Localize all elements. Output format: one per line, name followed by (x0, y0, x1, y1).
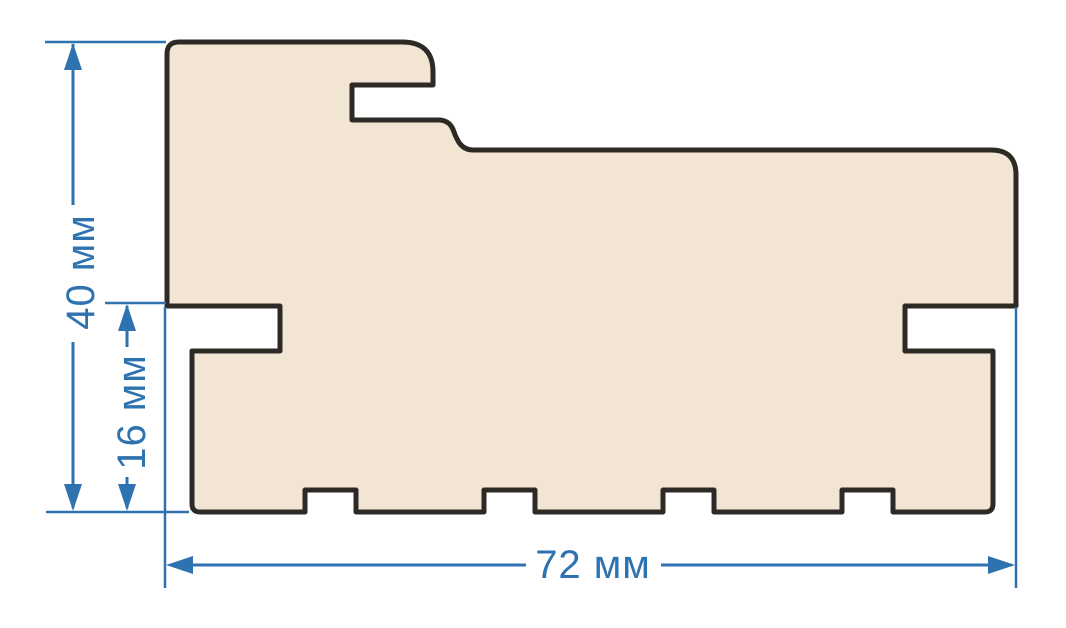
arrowhead-left-icon (166, 556, 193, 574)
arrowhead-up-icon (118, 304, 136, 331)
arrowhead-up-icon (64, 43, 82, 70)
diagram-canvas: 40 мм 16 мм 72 мм (0, 0, 1066, 628)
dim-rebate-label: 16 мм (110, 354, 154, 470)
dim-width-label: 72 мм (535, 543, 651, 587)
dim-height-label: 40 мм (59, 214, 103, 330)
profile-diagram: 40 мм 16 мм 72 мм (0, 0, 1066, 628)
dimension-rebate-16: 16 мм (110, 304, 154, 511)
arrowhead-down-icon (64, 484, 82, 511)
profile-cross-section-shape (167, 42, 1016, 512)
arrowhead-down-icon (118, 484, 136, 511)
arrowhead-right-icon (988, 556, 1015, 574)
dimension-height-40: 40 мм (59, 43, 103, 511)
dimension-width-72: 72 мм (166, 543, 1015, 587)
